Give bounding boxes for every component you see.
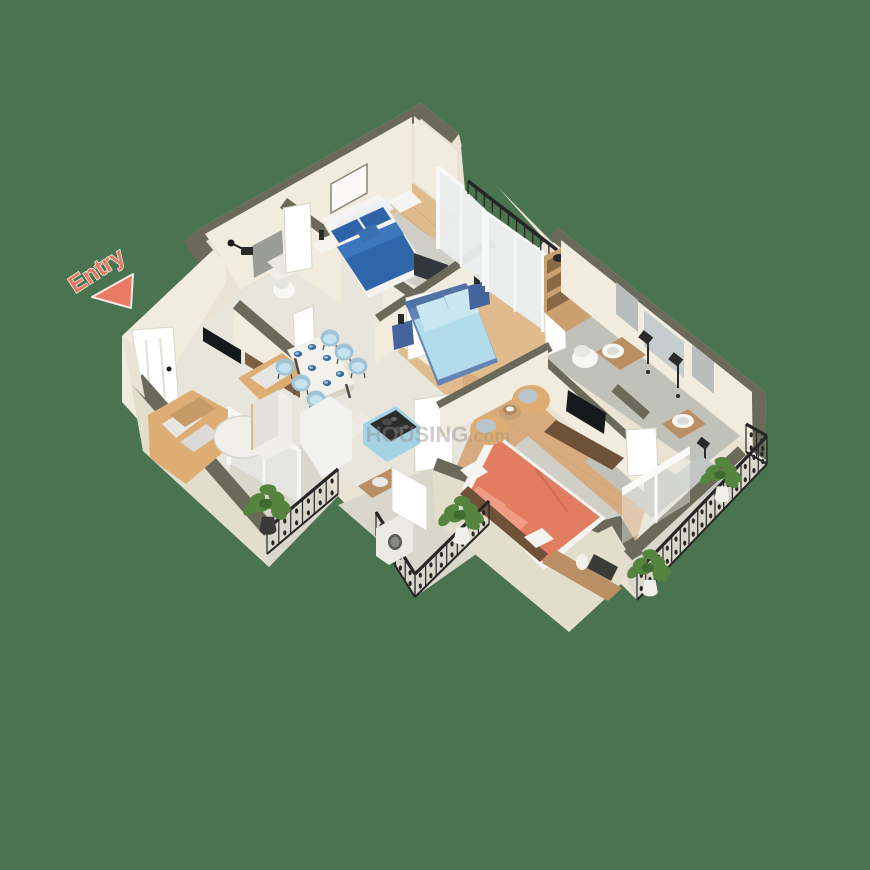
svg-text:HOUSING.com: HOUSING.com — [366, 422, 511, 447]
